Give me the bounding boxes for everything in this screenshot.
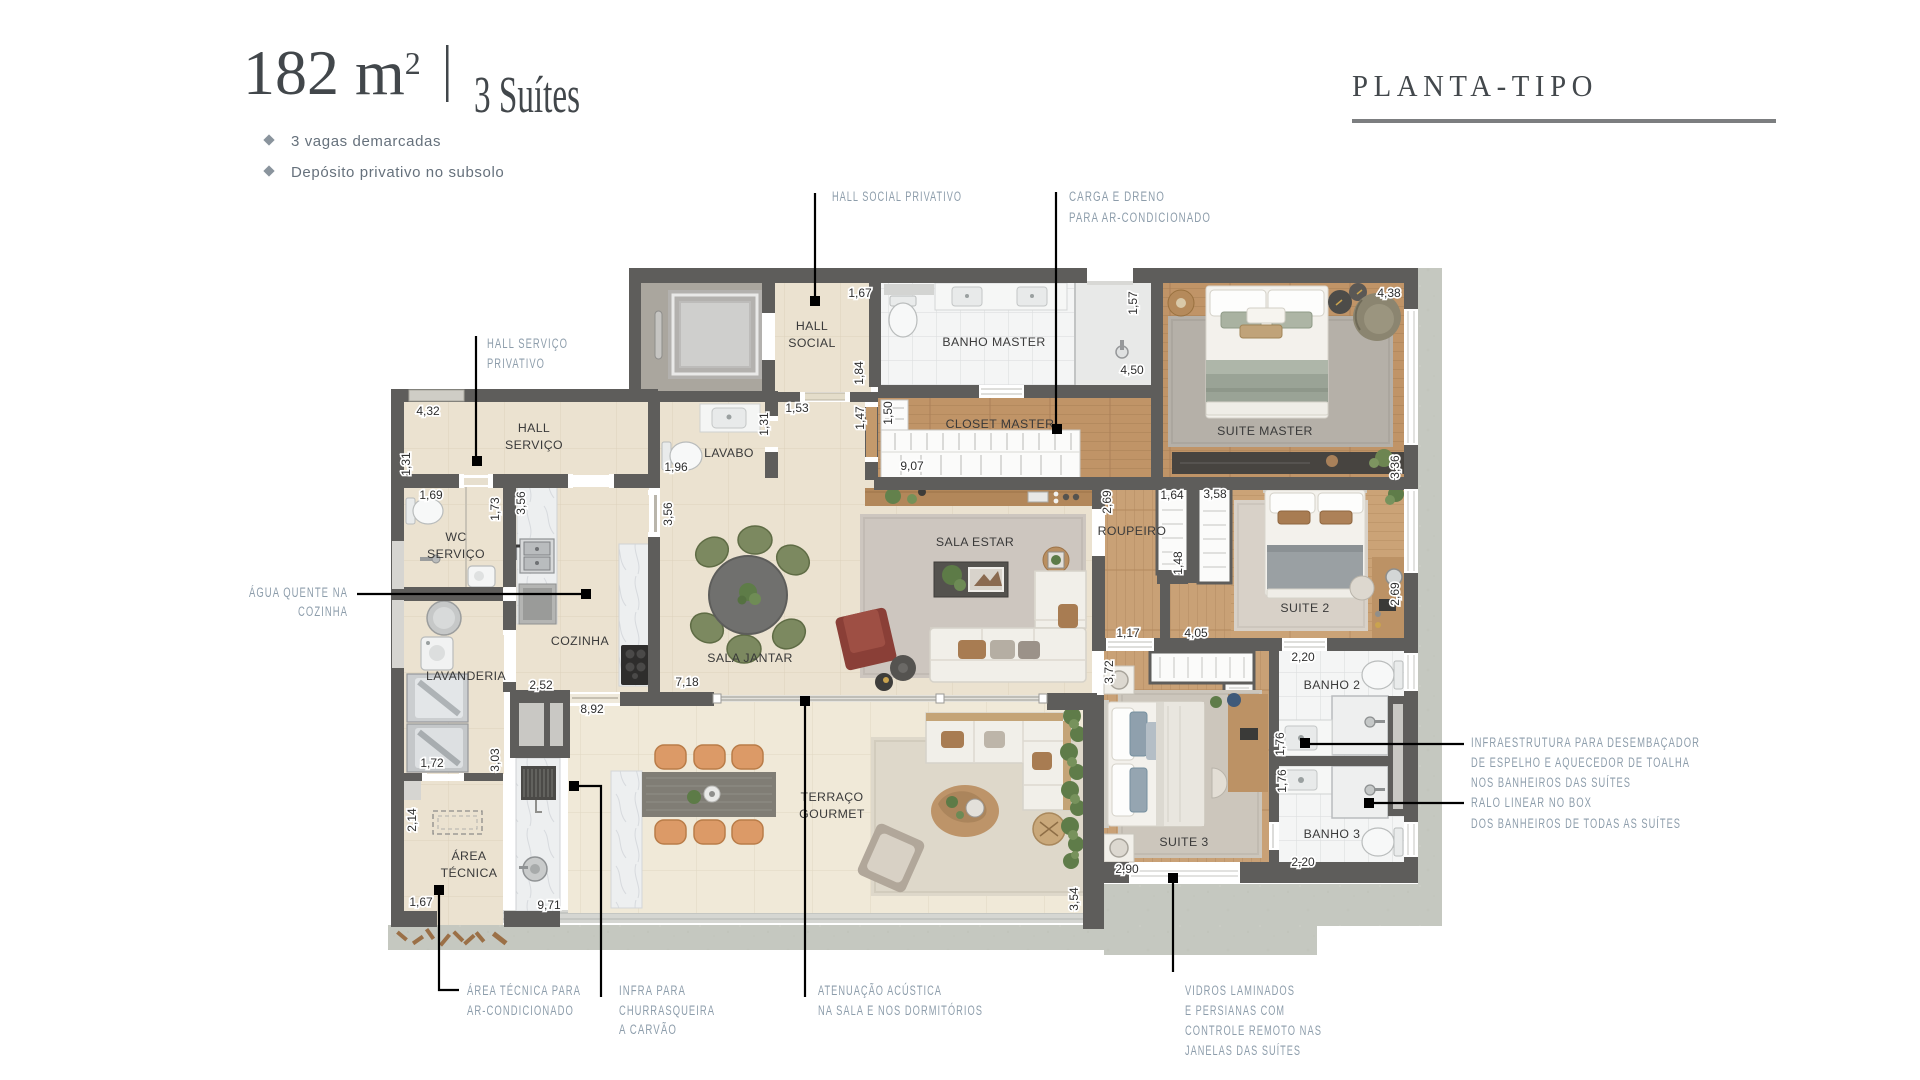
svg-text:BANHO 2: BANHO 2 — [1304, 678, 1361, 692]
svg-text:SERVIÇO: SERVIÇO — [427, 547, 485, 561]
svg-text:1,69: 1,69 — [419, 488, 443, 502]
svg-text:LAVABO: LAVABO — [704, 446, 754, 460]
svg-text:RALO LINEAR NO BOX: RALO LINEAR NO BOX — [1471, 795, 1592, 810]
svg-text:1,50: 1,50 — [881, 401, 895, 425]
svg-text:2,52: 2,52 — [529, 678, 553, 692]
svg-text:Depósito privativo no subsolo: Depósito privativo no subsolo — [291, 164, 504, 181]
svg-text:ATENUAÇÃO ACÚSTICA: ATENUAÇÃO ACÚSTICA — [818, 983, 942, 998]
svg-text:1,31: 1,31 — [757, 412, 771, 436]
svg-text:2,69: 2,69 — [1100, 490, 1114, 514]
svg-text:INFRAESTRUTURA PARA DESEMBAÇAD: INFRAESTRUTURA PARA DESEMBAÇADOR — [1471, 735, 1700, 750]
svg-text:SALA JANTAR: SALA JANTAR — [707, 651, 793, 665]
svg-text:HALL: HALL — [796, 319, 828, 333]
svg-text:3,56: 3,56 — [514, 491, 528, 515]
svg-text:E PERSIANAS COM: E PERSIANAS COM — [1185, 1003, 1285, 1018]
svg-text:CHURRASQUEIRA: CHURRASQUEIRA — [619, 1003, 715, 1018]
svg-text:TÉCNICA: TÉCNICA — [441, 865, 498, 880]
svg-text:9,07: 9,07 — [900, 459, 924, 473]
svg-text:2,20: 2,20 — [1291, 855, 1315, 869]
svg-text:3 Suítes: 3 Suítes — [474, 67, 580, 124]
svg-text:INFRA PARA: INFRA PARA — [619, 983, 686, 998]
svg-text:ÁREA: ÁREA — [451, 848, 486, 863]
svg-text:SALA ESTAR: SALA ESTAR — [936, 535, 1014, 549]
svg-text:3,36: 3,36 — [1388, 455, 1402, 479]
svg-text:4,05: 4,05 — [1184, 626, 1208, 640]
svg-text:HALL: HALL — [518, 421, 550, 435]
svg-text:COZINHA: COZINHA — [298, 604, 348, 619]
svg-text:1,31: 1,31 — [399, 452, 413, 476]
svg-text:2,90: 2,90 — [1115, 862, 1139, 876]
svg-text:4,38: 4,38 — [1377, 286, 1401, 300]
svg-text:ROUPEIRO: ROUPEIRO — [1098, 524, 1167, 538]
svg-text:PLANTA-TIPO: PLANTA-TIPO — [1352, 68, 1598, 103]
svg-text:2,14: 2,14 — [405, 808, 419, 832]
svg-text:1,76: 1,76 — [1275, 769, 1289, 793]
svg-text:SUITE MASTER: SUITE MASTER — [1217, 424, 1313, 438]
svg-text:SUITE 2: SUITE 2 — [1280, 601, 1329, 615]
svg-text:AR-CONDICIONADO: AR-CONDICIONADO — [467, 1003, 574, 1018]
svg-text:JANELAS DAS SUÍTES: JANELAS DAS SUÍTES — [1185, 1043, 1301, 1058]
svg-text:SUITE 3: SUITE 3 — [1159, 835, 1208, 849]
svg-text:NA SALA E NOS DORMITÓRIOS: NA SALA E NOS DORMITÓRIOS — [818, 1003, 983, 1018]
svg-text:8,92: 8,92 — [580, 702, 604, 716]
svg-text:ÁREA TÉCNICA PARA: ÁREA TÉCNICA PARA — [467, 983, 581, 998]
svg-text:1,48: 1,48 — [1171, 551, 1185, 575]
svg-text:1,96: 1,96 — [664, 460, 688, 474]
svg-text:SERVIÇO: SERVIÇO — [505, 438, 563, 452]
svg-text:VIDROS LAMINADOS: VIDROS LAMINADOS — [1185, 983, 1295, 998]
svg-text:3 vagas demarcadas: 3 vagas demarcadas — [291, 133, 441, 150]
svg-text:CLOSET MASTER: CLOSET MASTER — [946, 417, 1055, 431]
svg-text:4,50: 4,50 — [1120, 363, 1144, 377]
svg-text:CARGA E DRENO: CARGA E DRENO — [1069, 189, 1165, 204]
svg-text:BANHO MASTER: BANHO MASTER — [942, 335, 1045, 349]
svg-text:ÁGUA QUENTE NA: ÁGUA QUENTE NA — [249, 585, 348, 600]
svg-text:2,20: 2,20 — [1291, 650, 1315, 664]
svg-text:3,03: 3,03 — [488, 748, 502, 772]
svg-text:DE ESPELHO E AQUECEDOR DE TOAL: DE ESPELHO E AQUECEDOR DE TOALHA — [1471, 755, 1690, 770]
svg-text:1,84: 1,84 — [852, 361, 866, 385]
svg-text:1,72: 1,72 — [420, 756, 444, 770]
svg-text:GOURMET: GOURMET — [799, 807, 865, 821]
svg-text:1,64: 1,64 — [1160, 488, 1184, 502]
svg-text:1,53: 1,53 — [785, 401, 809, 415]
svg-text:NOS BANHEIROS DAS SUÍTES: NOS BANHEIROS DAS SUÍTES — [1471, 775, 1631, 790]
svg-text:9,71: 9,71 — [537, 898, 561, 912]
svg-text:1,76: 1,76 — [1273, 732, 1287, 756]
svg-text:HALL SERVIÇO: HALL SERVIÇO — [487, 336, 568, 351]
svg-text:CONTROLE REMOTO NAS: CONTROLE REMOTO NAS — [1185, 1023, 1322, 1038]
svg-text:1,57: 1,57 — [1126, 291, 1140, 315]
svg-text:182 m2: 182 m2 — [243, 37, 421, 108]
svg-text:1,47: 1,47 — [853, 406, 867, 430]
svg-text:1,73: 1,73 — [488, 497, 502, 521]
svg-text:TERRAÇO: TERRAÇO — [801, 790, 864, 804]
svg-text:1,17: 1,17 — [1116, 626, 1140, 640]
svg-text:HALL SOCIAL PRIVATIVO: HALL SOCIAL PRIVATIVO — [832, 189, 962, 204]
svg-text:PRIVATIVO: PRIVATIVO — [487, 356, 545, 371]
svg-text:A CARVÃO: A CARVÃO — [619, 1022, 677, 1037]
svg-text:3,72: 3,72 — [1102, 660, 1116, 684]
svg-text:LAVANDERIA: LAVANDERIA — [426, 669, 506, 683]
svg-text:1,67: 1,67 — [409, 895, 433, 909]
svg-text:4,32: 4,32 — [416, 404, 440, 418]
svg-text:2,69: 2,69 — [1388, 582, 1402, 606]
svg-text:BANHO 3: BANHO 3 — [1304, 827, 1361, 841]
svg-text:3,56: 3,56 — [661, 502, 675, 526]
svg-text:1,67: 1,67 — [848, 286, 872, 300]
svg-text:7,18: 7,18 — [675, 675, 699, 689]
svg-text:DOS BANHEIROS DE TODAS AS SUÍT: DOS BANHEIROS DE TODAS AS SUÍTES — [1471, 816, 1681, 831]
svg-text:WC: WC — [445, 530, 466, 544]
svg-text:PARA AR-CONDICIONADO: PARA AR-CONDICIONADO — [1069, 210, 1211, 225]
svg-text:COZINHA: COZINHA — [551, 634, 610, 648]
svg-text:SOCIAL: SOCIAL — [788, 336, 836, 350]
svg-text:3,58: 3,58 — [1203, 487, 1227, 501]
svg-text:3,54: 3,54 — [1067, 887, 1081, 911]
